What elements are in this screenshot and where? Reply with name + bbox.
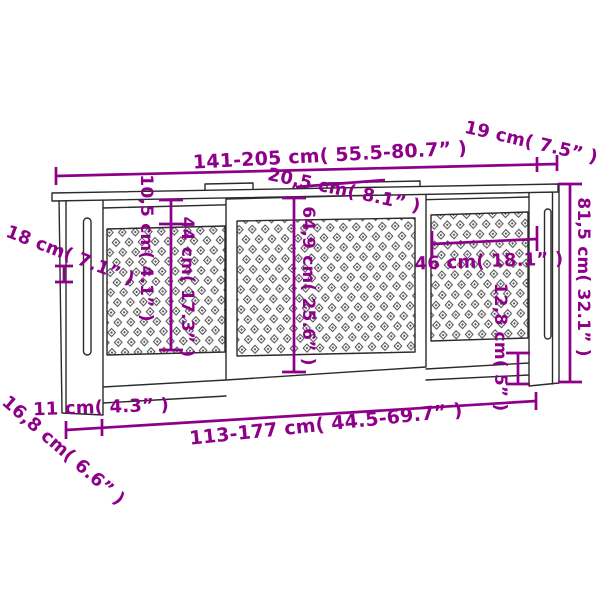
lattice-panel-left	[103, 226, 226, 403]
dim-label-total-height: 81,5 cm( 32.1” )	[573, 197, 593, 356]
lattice-panel-center-front	[226, 194, 426, 380]
radiator-cover-dimension-diagram: 141-205 cm( 55.5-80.7” ) 19 cm( 7.5” ) 2…	[0, 0, 600, 600]
diagram-canvas: 141-205 cm( 55.5-80.7” ) 19 cm( 7.5” ) 2…	[0, 0, 600, 600]
left-side-slot	[84, 218, 92, 355]
dim-label-inner-width: 113-177 cm( 44.5-69.7” )	[188, 399, 463, 450]
left-side-panel	[59, 197, 103, 415]
dim-label-leg-width: 11 cm( 4.3” )	[33, 395, 170, 421]
dim-label-side-top-depth: 19 cm( 7.5” )	[462, 117, 599, 168]
dim-label-bottom-clearance: 12,8 cm( 5” )	[490, 283, 510, 412]
lattice-panel-right	[426, 212, 529, 380]
dim-label-top-rail-height: 10,5 cm( 4.1” )	[136, 174, 156, 321]
dim-label-front-panel-height: 64,9 cm( 25.6” )	[298, 206, 318, 365]
right-side-panel	[529, 184, 559, 386]
dim-label-side-lattice-height: 44 cm( 17.3” )	[177, 217, 197, 358]
right-side-slot	[545, 209, 552, 339]
